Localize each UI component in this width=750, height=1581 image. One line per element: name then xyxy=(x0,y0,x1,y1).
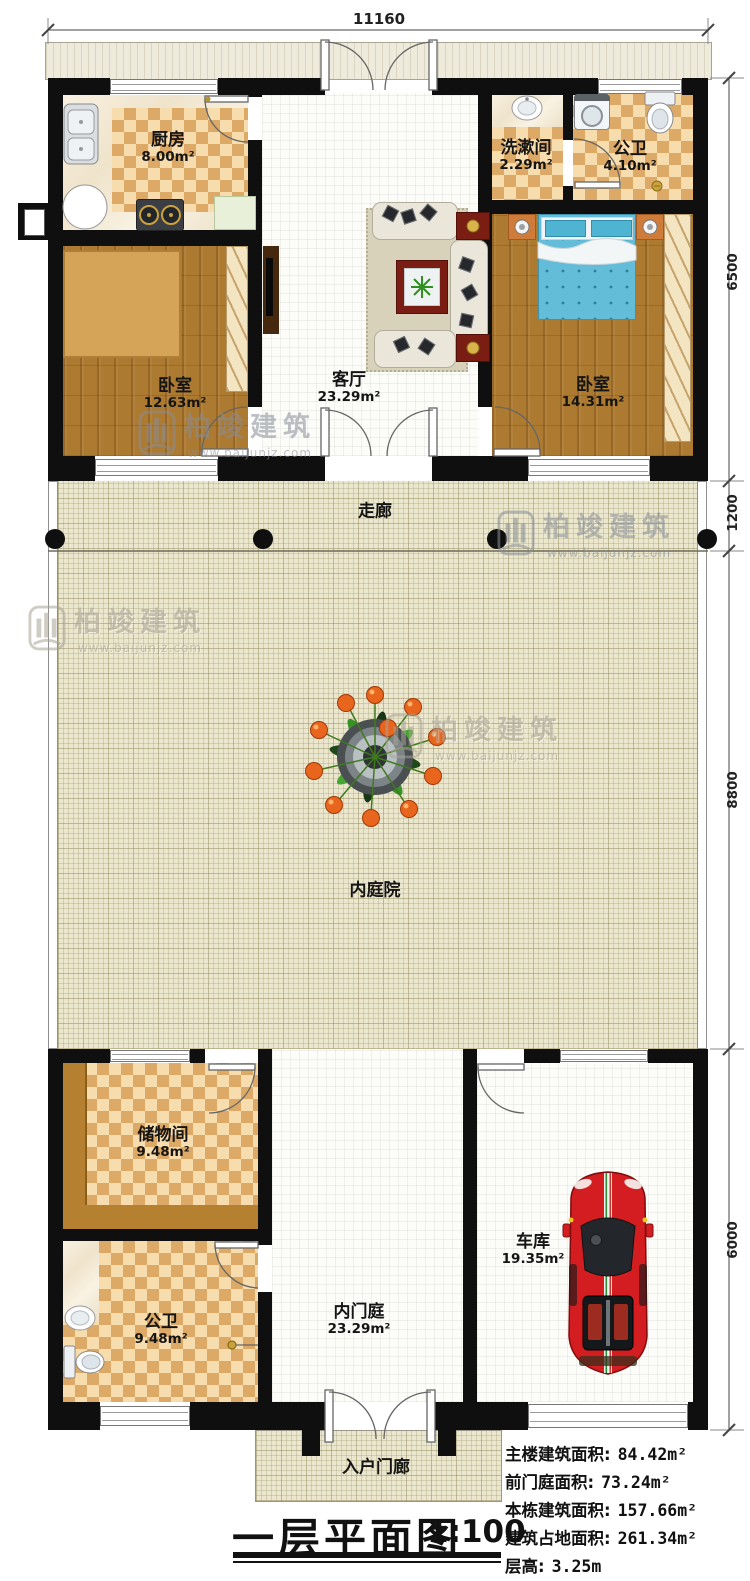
wall-segment xyxy=(432,78,598,95)
room-area: 4.10m² xyxy=(603,159,656,174)
roof-eave-strip xyxy=(45,42,712,80)
wall-segment xyxy=(258,1292,272,1402)
title-underline-thick xyxy=(233,1552,501,1558)
dim-right-main-top: 6500 xyxy=(725,253,741,291)
stat-label: 层高: xyxy=(505,1557,545,1576)
room-area: 9.48m² xyxy=(136,1145,189,1160)
stat-row: 主楼建筑面积:84.42m² xyxy=(505,1441,745,1469)
room-name: 客厅 xyxy=(318,371,381,390)
room-area: 2.29m² xyxy=(499,158,552,173)
wall-left-outer xyxy=(48,1049,63,1430)
room-name: 厨房 xyxy=(141,131,194,150)
garage-window xyxy=(560,1050,648,1062)
wall-segment xyxy=(63,230,248,246)
porch-stub-right xyxy=(438,1430,456,1456)
room-area: 8.00m² xyxy=(141,150,194,165)
flue-box-inner xyxy=(24,209,45,236)
coffee-table-glass xyxy=(404,268,440,306)
room-name: 车库 xyxy=(502,1233,565,1252)
entry-hall-floor xyxy=(272,1049,463,1402)
nightstand-left xyxy=(508,214,536,240)
wall-segment xyxy=(218,78,325,95)
stat-row: 前门庭面积:73.24m² xyxy=(505,1469,745,1497)
dim-right-courtyard: 8800 xyxy=(725,771,741,809)
stat-value: 3.25m xyxy=(552,1557,602,1576)
wall-segment xyxy=(524,1049,560,1063)
stove xyxy=(136,199,184,231)
wall-segment xyxy=(432,1402,528,1430)
wall-segment xyxy=(463,1049,477,1063)
side-table-bottom xyxy=(456,334,490,362)
room-label-washroom: 洗漱间 2.29m² xyxy=(499,139,552,173)
room-area: 23.29m² xyxy=(318,390,381,405)
room-area: 12.63m² xyxy=(144,396,207,411)
nightstand-right xyxy=(636,214,664,240)
side-table-top xyxy=(456,212,490,240)
wall-segment xyxy=(563,93,573,140)
room-label-bath-top: 公卫 4.10m² xyxy=(603,140,656,174)
room-name: 入户门廊 xyxy=(342,1459,410,1478)
kitchen-window xyxy=(110,79,218,94)
wall-segment xyxy=(48,1402,100,1430)
stat-label: 本栋建筑面积: xyxy=(505,1501,611,1520)
bed-right-pillow xyxy=(545,220,586,237)
stat-row: 建筑占地面积:261.34m² xyxy=(505,1525,745,1553)
wall-segment xyxy=(48,456,95,481)
storage-counter-bottom xyxy=(63,1205,258,1232)
bedroom-left-window xyxy=(95,459,218,476)
room-label-bedroom-left: 卧室 12.63m² xyxy=(144,377,207,411)
wall-segment xyxy=(492,200,693,214)
washroom-counter xyxy=(492,93,563,127)
room-name: 洗漱间 xyxy=(499,139,552,158)
room-label-corridor: 走廊 xyxy=(358,503,392,522)
bed-left xyxy=(63,250,181,358)
stat-label: 前门庭面积: xyxy=(505,1473,594,1492)
garage-door-strip xyxy=(528,1404,688,1428)
bath-top-window xyxy=(598,79,682,94)
room-area: 9.48m² xyxy=(134,1332,187,1347)
bath-bottom-window xyxy=(100,1406,190,1426)
sofa-pillow xyxy=(459,313,474,328)
stat-value: 157.66m² xyxy=(618,1501,697,1520)
room-label-entry-hall: 内门庭 23.29m² xyxy=(328,1303,391,1337)
wall-right-outer xyxy=(693,78,708,481)
corridor-courtyard-floor xyxy=(58,481,697,1049)
room-label-bedroom-right: 卧室 14.31m² xyxy=(562,376,625,410)
room-name: 储物间 xyxy=(136,1126,189,1145)
room-name: 公卫 xyxy=(603,140,656,159)
room-name: 公卫 xyxy=(134,1313,187,1332)
wall-right-outer xyxy=(693,1049,708,1430)
storage-window xyxy=(110,1050,190,1062)
wall-segment xyxy=(563,186,573,200)
wall-segment xyxy=(650,456,708,481)
room-area: 14.31m² xyxy=(562,395,625,410)
floor-plan-page: { "title": {"text": "一层平面图", "scale": "1… xyxy=(0,0,750,1581)
stat-value: 84.42m² xyxy=(618,1445,688,1464)
wall-segment xyxy=(248,140,262,407)
stat-label: 建筑占地面积: xyxy=(505,1529,611,1548)
wall-segment xyxy=(218,456,325,481)
room-area: 23.29m² xyxy=(328,1322,391,1337)
room-label-garage: 车库 19.35m² xyxy=(502,1233,565,1267)
stat-row: 本栋建筑面积:157.66m² xyxy=(505,1497,745,1525)
wardrobe-right xyxy=(664,214,691,442)
room-label-porch: 入户门廊 xyxy=(342,1459,410,1478)
dim-right-bottom: 6000 xyxy=(725,1221,741,1259)
wall-segment xyxy=(688,1402,708,1430)
bed-right-pillow xyxy=(591,220,632,237)
wall-segment xyxy=(248,93,262,97)
title-underline-thin xyxy=(233,1561,501,1563)
room-label-storage: 储物间 9.48m² xyxy=(136,1126,189,1160)
room-name: 卧室 xyxy=(562,376,625,395)
room-name: 走廊 xyxy=(358,503,392,522)
stat-label: 主楼建筑面积: xyxy=(505,1445,611,1464)
wall-left-outer xyxy=(48,78,63,481)
courtyard-right-rail xyxy=(697,481,707,1049)
room-label-courtyard: 内庭院 xyxy=(350,882,401,901)
bath-bottom-counter xyxy=(63,1241,99,1321)
room-label-living: 客厅 23.29m² xyxy=(318,371,381,405)
washing-machine-panel xyxy=(574,94,610,101)
wall-segment xyxy=(463,1063,477,1402)
wall-segment xyxy=(432,456,528,481)
wall-segment xyxy=(258,1063,272,1245)
building-stats: 主楼建筑面积:84.42m² 前门庭面积:73.24m² 本栋建筑面积:157.… xyxy=(505,1441,745,1581)
room-name: 卧室 xyxy=(144,377,207,396)
wall-segment xyxy=(190,1402,325,1430)
dim-right-corridor: 1200 xyxy=(725,494,741,532)
tv-screen xyxy=(266,258,273,316)
stat-row: 层高:3.25m xyxy=(505,1553,745,1581)
room-name: 内门庭 xyxy=(328,1303,391,1322)
room-area: 19.35m² xyxy=(502,1252,565,1267)
dim-top-width: 11160 xyxy=(353,10,405,28)
stat-value: 73.24m² xyxy=(601,1473,671,1492)
sofa-bottom xyxy=(374,330,456,368)
wall-segment xyxy=(63,1229,258,1241)
room-label-bath-bottom: 公卫 9.48m² xyxy=(134,1313,187,1347)
room-label-kitchen: 厨房 8.00m² xyxy=(141,131,194,165)
wardrobe-left xyxy=(226,246,248,392)
stat-value: 261.34m² xyxy=(618,1529,697,1548)
room-name: 内庭院 xyxy=(350,882,401,901)
wall-segment xyxy=(258,1049,272,1063)
cutting-board xyxy=(214,196,256,230)
porch-stub-left xyxy=(302,1430,320,1456)
wall-segment xyxy=(190,1049,205,1063)
courtyard-left-rail xyxy=(48,481,58,1049)
bedroom-right-window xyxy=(528,459,650,476)
